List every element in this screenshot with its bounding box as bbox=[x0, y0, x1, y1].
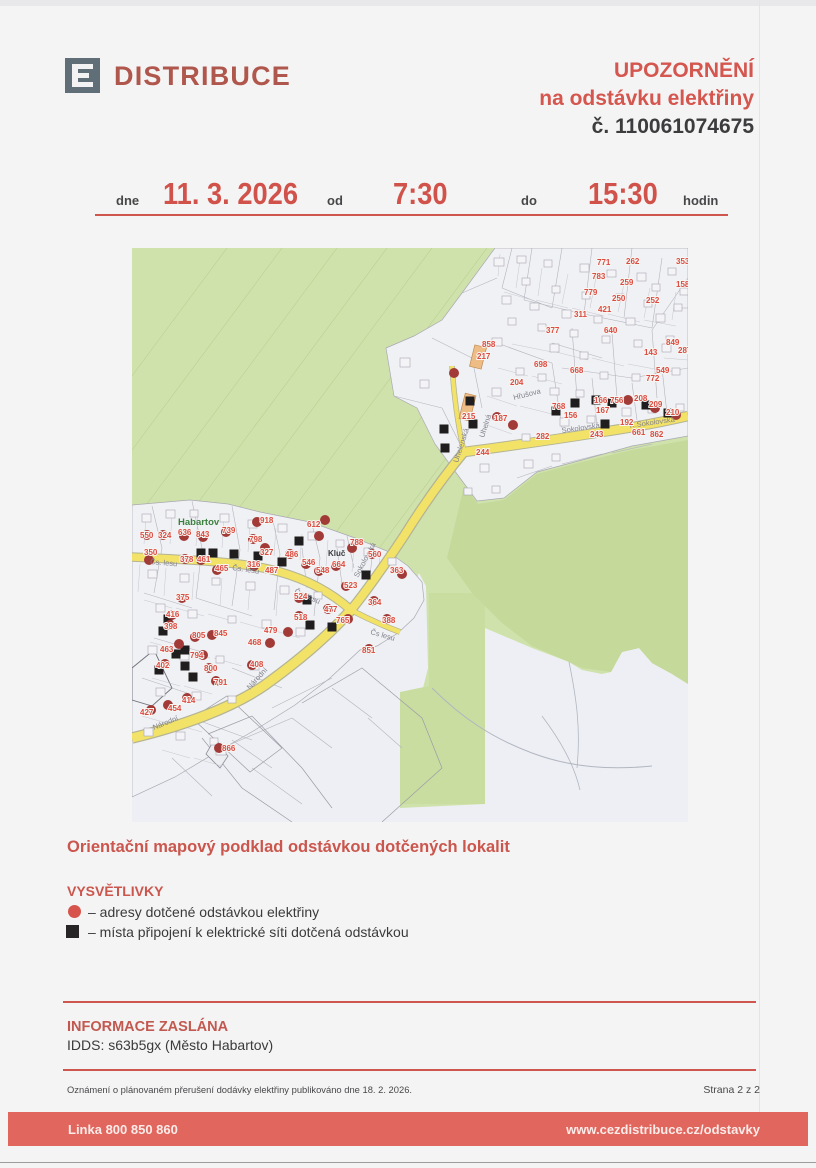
svg-text:414: 414 bbox=[182, 696, 196, 705]
svg-text:398: 398 bbox=[164, 622, 178, 631]
svg-text:858: 858 bbox=[482, 340, 496, 349]
svg-text:Habartov: Habartov bbox=[178, 517, 220, 528]
svg-text:771: 771 bbox=[597, 258, 611, 267]
svg-text:192: 192 bbox=[620, 418, 634, 427]
svg-text:548: 548 bbox=[316, 566, 330, 575]
svg-text:560: 560 bbox=[368, 550, 382, 559]
svg-text:204: 204 bbox=[510, 378, 524, 387]
svg-text:664: 664 bbox=[332, 560, 346, 569]
svg-text:845: 845 bbox=[214, 629, 228, 638]
svg-text:546: 546 bbox=[302, 558, 316, 567]
svg-text:668: 668 bbox=[570, 366, 584, 375]
svg-text:454: 454 bbox=[168, 704, 182, 713]
svg-text:324: 324 bbox=[158, 531, 172, 540]
svg-text:486: 486 bbox=[285, 550, 299, 559]
svg-text:479: 479 bbox=[264, 626, 278, 635]
svg-text:363: 363 bbox=[390, 566, 404, 575]
svg-text:783: 783 bbox=[592, 272, 606, 281]
svg-text:477: 477 bbox=[324, 605, 338, 614]
svg-text:408: 408 bbox=[250, 660, 264, 669]
svg-text:640: 640 bbox=[604, 326, 618, 335]
svg-text:550: 550 bbox=[140, 531, 154, 540]
svg-text:167: 167 bbox=[596, 406, 610, 415]
svg-text:794: 794 bbox=[190, 651, 204, 660]
svg-text:166: 166 bbox=[594, 396, 608, 405]
svg-text:768: 768 bbox=[552, 402, 566, 411]
svg-text:287: 287 bbox=[678, 346, 688, 355]
svg-text:465: 465 bbox=[215, 564, 229, 573]
svg-text:353: 353 bbox=[676, 257, 688, 266]
svg-text:862: 862 bbox=[650, 430, 664, 439]
svg-text:851: 851 bbox=[362, 646, 376, 655]
svg-text:377: 377 bbox=[546, 326, 560, 335]
svg-text:327: 327 bbox=[260, 548, 274, 557]
svg-text:791: 791 bbox=[214, 678, 228, 687]
svg-text:243: 243 bbox=[590, 430, 604, 439]
svg-text:217: 217 bbox=[477, 352, 491, 361]
svg-text:316: 316 bbox=[247, 560, 261, 569]
svg-text:209: 209 bbox=[649, 400, 663, 409]
svg-text:402: 402 bbox=[156, 661, 170, 670]
svg-text:463: 463 bbox=[160, 645, 174, 654]
svg-text:158: 158 bbox=[676, 280, 688, 289]
svg-text:252: 252 bbox=[646, 296, 660, 305]
svg-text:427: 427 bbox=[140, 708, 154, 717]
svg-text:468: 468 bbox=[248, 638, 262, 647]
svg-text:388: 388 bbox=[382, 616, 396, 625]
svg-text:772: 772 bbox=[646, 374, 660, 383]
svg-text:143: 143 bbox=[644, 348, 658, 357]
svg-text:244: 244 bbox=[476, 448, 490, 457]
svg-text:918: 918 bbox=[260, 516, 274, 525]
svg-text:636: 636 bbox=[178, 528, 192, 537]
svg-text:739: 739 bbox=[222, 526, 236, 535]
svg-text:350: 350 bbox=[144, 548, 158, 557]
svg-text:698: 698 bbox=[534, 360, 548, 369]
svg-text:487: 487 bbox=[265, 566, 279, 575]
svg-text:250: 250 bbox=[612, 294, 626, 303]
svg-text:800: 800 bbox=[204, 664, 218, 673]
svg-text:Kluč: Kluč bbox=[328, 549, 346, 558]
svg-text:259: 259 bbox=[620, 278, 634, 287]
svg-text:518: 518 bbox=[294, 613, 308, 622]
svg-text:798: 798 bbox=[249, 535, 263, 544]
svg-text:524: 524 bbox=[294, 592, 308, 601]
svg-text:156: 156 bbox=[564, 411, 578, 420]
svg-text:461: 461 bbox=[197, 555, 211, 564]
svg-text:421: 421 bbox=[598, 305, 612, 314]
svg-text:612: 612 bbox=[307, 520, 321, 529]
svg-text:208: 208 bbox=[634, 394, 648, 403]
svg-text:416: 416 bbox=[166, 610, 180, 619]
svg-text:262: 262 bbox=[626, 257, 640, 266]
svg-text:523: 523 bbox=[344, 581, 358, 590]
svg-text:765: 765 bbox=[336, 616, 350, 625]
svg-text:311: 311 bbox=[574, 310, 587, 319]
svg-text:364: 364 bbox=[368, 598, 382, 607]
svg-text:378: 378 bbox=[180, 555, 194, 564]
svg-text:756: 756 bbox=[610, 396, 624, 405]
svg-text:210: 210 bbox=[666, 408, 680, 417]
svg-text:805: 805 bbox=[192, 631, 206, 640]
svg-text:866: 866 bbox=[222, 744, 236, 753]
svg-text:661: 661 bbox=[632, 428, 646, 437]
svg-text:187: 187 bbox=[494, 414, 508, 423]
svg-text:788: 788 bbox=[350, 538, 364, 547]
svg-text:215: 215 bbox=[462, 412, 476, 421]
svg-text:282: 282 bbox=[536, 432, 550, 441]
svg-text:375: 375 bbox=[176, 593, 190, 602]
svg-text:779: 779 bbox=[584, 288, 598, 297]
svg-text:843: 843 bbox=[196, 530, 210, 539]
